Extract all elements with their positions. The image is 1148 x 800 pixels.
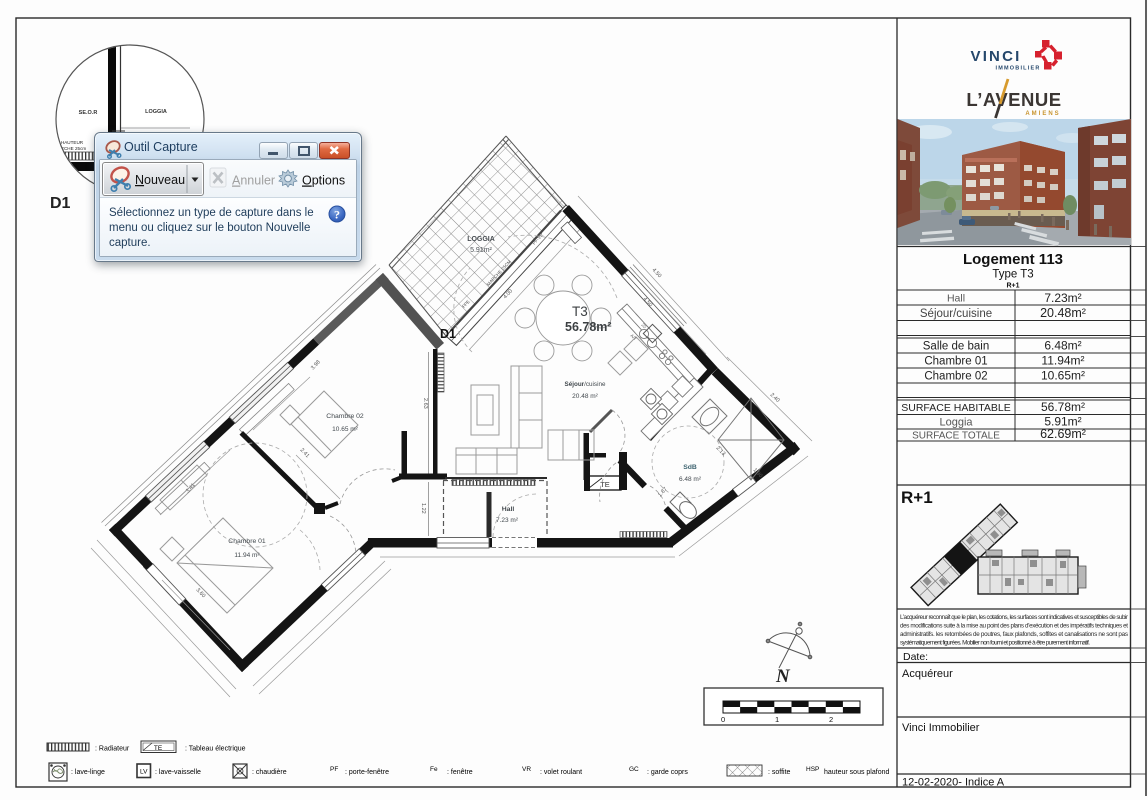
svg-text:Logement 113: Logement 113 <box>963 251 1063 268</box>
svg-text:Chambre 02: Chambre 02 <box>924 371 987 383</box>
svg-text:: Tableau électrique: : Tableau électrique <box>185 746 246 753</box>
svg-text:HAUTEUR: HAUTEUR <box>61 140 84 145</box>
svg-text:: garde coprs: : garde coprs <box>647 769 688 776</box>
svg-text:20.48 m²: 20.48 m² <box>572 393 598 400</box>
svg-text:: Radiateur: : Radiateur <box>95 746 130 753</box>
svg-text:Fe: Fe <box>430 766 438 773</box>
svg-text:AMIENS: AMIENS <box>1025 111 1060 117</box>
svg-text:56.78m²: 56.78m² <box>565 320 612 334</box>
svg-text:Options: Options <box>302 174 345 188</box>
svg-text:administratifs. les retombées: administratifs. les retombées de poutres… <box>900 631 1128 638</box>
svg-text:Hall: Hall <box>947 293 965 305</box>
svg-text:56.78m²: 56.78m² <box>1041 400 1085 414</box>
svg-text:PF: PF <box>330 766 338 773</box>
svg-text:SdB: SdB <box>683 464 697 471</box>
svg-text:VINCI: VINCI <box>970 48 1021 65</box>
svg-text:11.94m²: 11.94m² <box>1041 354 1084 368</box>
svg-text:2.40: 2.40 <box>769 392 781 404</box>
svg-text:: volet roulant: : volet roulant <box>540 769 582 776</box>
svg-text:7.23m²: 7.23m² <box>1044 291 1081 305</box>
svg-text:hauteur sous plafond: hauteur sous plafond <box>824 769 889 776</box>
svg-text:L’AVENUE: L’AVENUE <box>966 89 1061 110</box>
svg-text:Vinci Immobilier: Vinci Immobilier <box>902 722 980 734</box>
svg-text:20.48m²: 20.48m² <box>1040 306 1086 320</box>
svg-text:Chambre 01: Chambre 01 <box>228 538 266 545</box>
svg-text:Type T3: Type T3 <box>992 269 1033 281</box>
svg-text:: fenêtre: : fenêtre <box>447 769 473 776</box>
svg-text:R+1: R+1 <box>1006 283 1019 290</box>
svg-text:IMMOBILIER: IMMOBILIER <box>996 66 1041 72</box>
svg-text:SE.O.R: SE.O.R <box>79 110 98 116</box>
svg-text:LV: LV <box>140 769 148 776</box>
svg-text:SURFACE HABITABLE: SURFACE HABITABLE <box>901 402 1011 414</box>
svg-text:D1: D1 <box>440 327 456 341</box>
svg-text:6.48m²: 6.48m² <box>1044 339 1081 353</box>
svg-text:10.65 m²: 10.65 m² <box>332 426 358 433</box>
svg-text:1: 1 <box>775 715 779 724</box>
svg-text:: chaudière: : chaudière <box>252 769 287 776</box>
svg-text:2: 2 <box>829 715 833 724</box>
svg-text:: porte-fenêtre: : porte-fenêtre <box>345 769 389 776</box>
svg-text:R+1: R+1 <box>901 488 933 507</box>
svg-text:Annuler: Annuler <box>232 174 275 188</box>
svg-text:6.48 m²: 6.48 m² <box>679 476 702 483</box>
svg-text:Chambre 02: Chambre 02 <box>326 413 364 420</box>
svg-text:3.98: 3.98 <box>310 359 322 371</box>
svg-text:2.41: 2.41 <box>299 447 311 459</box>
svg-text:systématiquement figurées. Mob: systématiquement figurées. Mobilier non … <box>900 640 1090 647</box>
svg-text:11.94 m²: 11.94 m² <box>234 552 260 559</box>
svg-text:?: ? <box>334 208 340 222</box>
svg-text:Acquéreur: Acquéreur <box>902 668 953 680</box>
svg-text:2.63: 2.63 <box>422 398 428 409</box>
svg-text:N: N <box>775 666 791 687</box>
svg-text:Nouveau: Nouveau <box>135 173 185 187</box>
svg-text:Séjour/cuisine: Séjour/cuisine <box>565 381 606 388</box>
svg-text:L’acquéreur reconnaît que le p: L’acquéreur reconnaît que le plan, les c… <box>900 614 1128 621</box>
svg-text:LOGGIA: LOGGIA <box>145 109 167 115</box>
svg-text:GC: GC <box>629 766 639 773</box>
svg-text:T3: T3 <box>572 304 588 319</box>
svg-text:: lave-linge: : lave-linge <box>71 769 105 776</box>
svg-text:: soffite: : soffite <box>768 769 791 776</box>
svg-text:3.60: 3.60 <box>195 587 207 599</box>
svg-text:Date:: Date: <box>903 651 928 663</box>
svg-text:des modifications suite à la m: des modifications suite à la mise au poi… <box>900 623 1128 630</box>
svg-text:5.91m²: 5.91m² <box>470 247 492 254</box>
svg-text:1.22: 1.22 <box>420 503 426 514</box>
svg-text:Séjour/cuisine: Séjour/cuisine <box>920 308 992 320</box>
svg-text:2.13: 2.13 <box>715 445 727 457</box>
svg-text:VR: VR <box>522 766 531 773</box>
svg-text:10.65m²: 10.65m² <box>1041 369 1085 383</box>
svg-text:MARCHE 25cm: MARCHE 25cm <box>54 146 87 151</box>
svg-text:TE: TE <box>154 745 163 752</box>
svg-text:12-02-2020- Indice A: 12-02-2020- Indice A <box>902 777 1005 789</box>
svg-text:1.87: 1.87 <box>657 486 669 498</box>
svg-text:Loggia: Loggia <box>939 417 973 429</box>
svg-text:TE: TE <box>600 480 610 489</box>
svg-text:7.23 m²: 7.23 m² <box>496 517 519 524</box>
svg-text:LOGGIA: LOGGIA <box>467 236 495 243</box>
svg-text:D1: D1 <box>50 195 71 212</box>
svg-text:3.41: 3.41 <box>185 482 197 494</box>
svg-text:Chambre 01: Chambre 01 <box>924 356 987 368</box>
svg-text:SURFACE TOTALE: SURFACE TOTALE <box>912 431 1000 442</box>
svg-text:0: 0 <box>721 715 725 724</box>
svg-text:: lave-vaisselle: : lave-vaisselle <box>155 769 201 776</box>
svg-text:HSP: HSP <box>806 766 819 773</box>
svg-text:62.69m²: 62.69m² <box>1040 427 1086 441</box>
svg-text:Salle de bain: Salle de bain <box>923 341 990 353</box>
